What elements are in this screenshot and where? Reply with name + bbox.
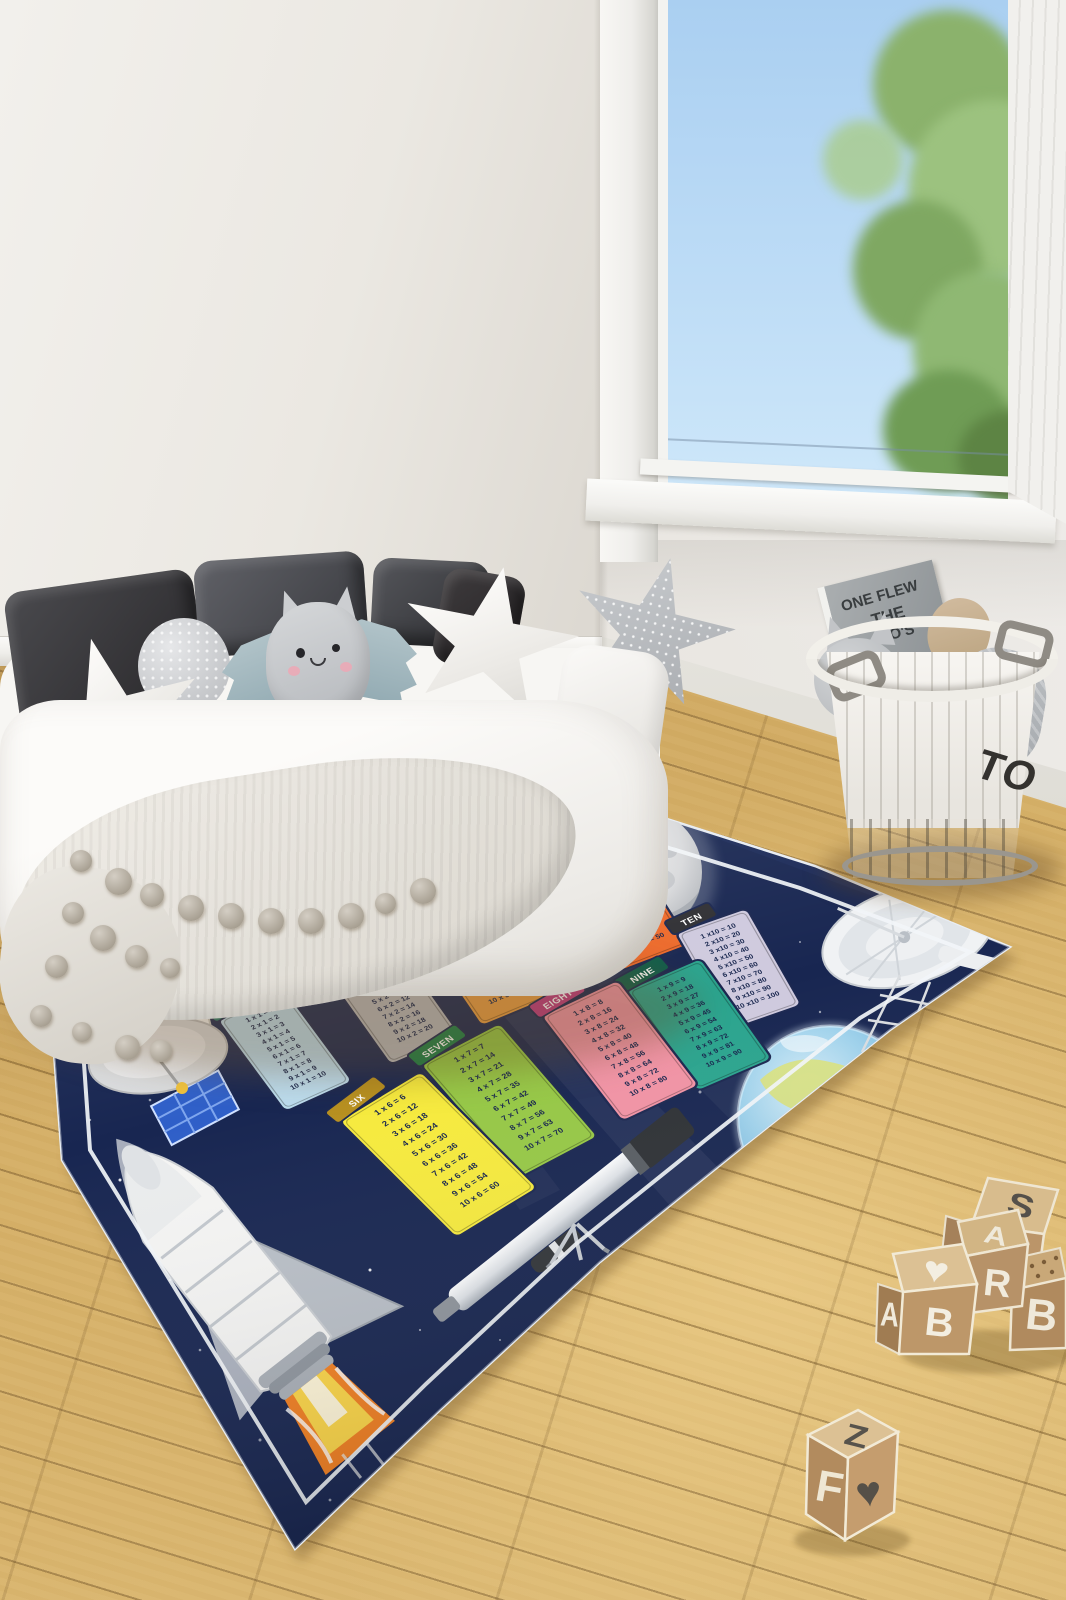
kids-room-photo: FIVE1 x 5 = 52 x 5 = 103 x 5 = 154 x 5 =… [0,0,1066,1600]
alphabet-blocks: S C B A R ♥ A B [0,0,1066,1600]
block-letter: R [981,1262,1013,1307]
block-heart-icon: ♥ [853,1468,884,1517]
block-letter: B [1023,1290,1060,1342]
block-letter: A [879,1296,900,1335]
block-heart-a-b: ♥ A B [876,1244,977,1354]
block-letter: B [923,1300,956,1347]
block-z-f-heart: Z F ♥ [806,1410,898,1540]
